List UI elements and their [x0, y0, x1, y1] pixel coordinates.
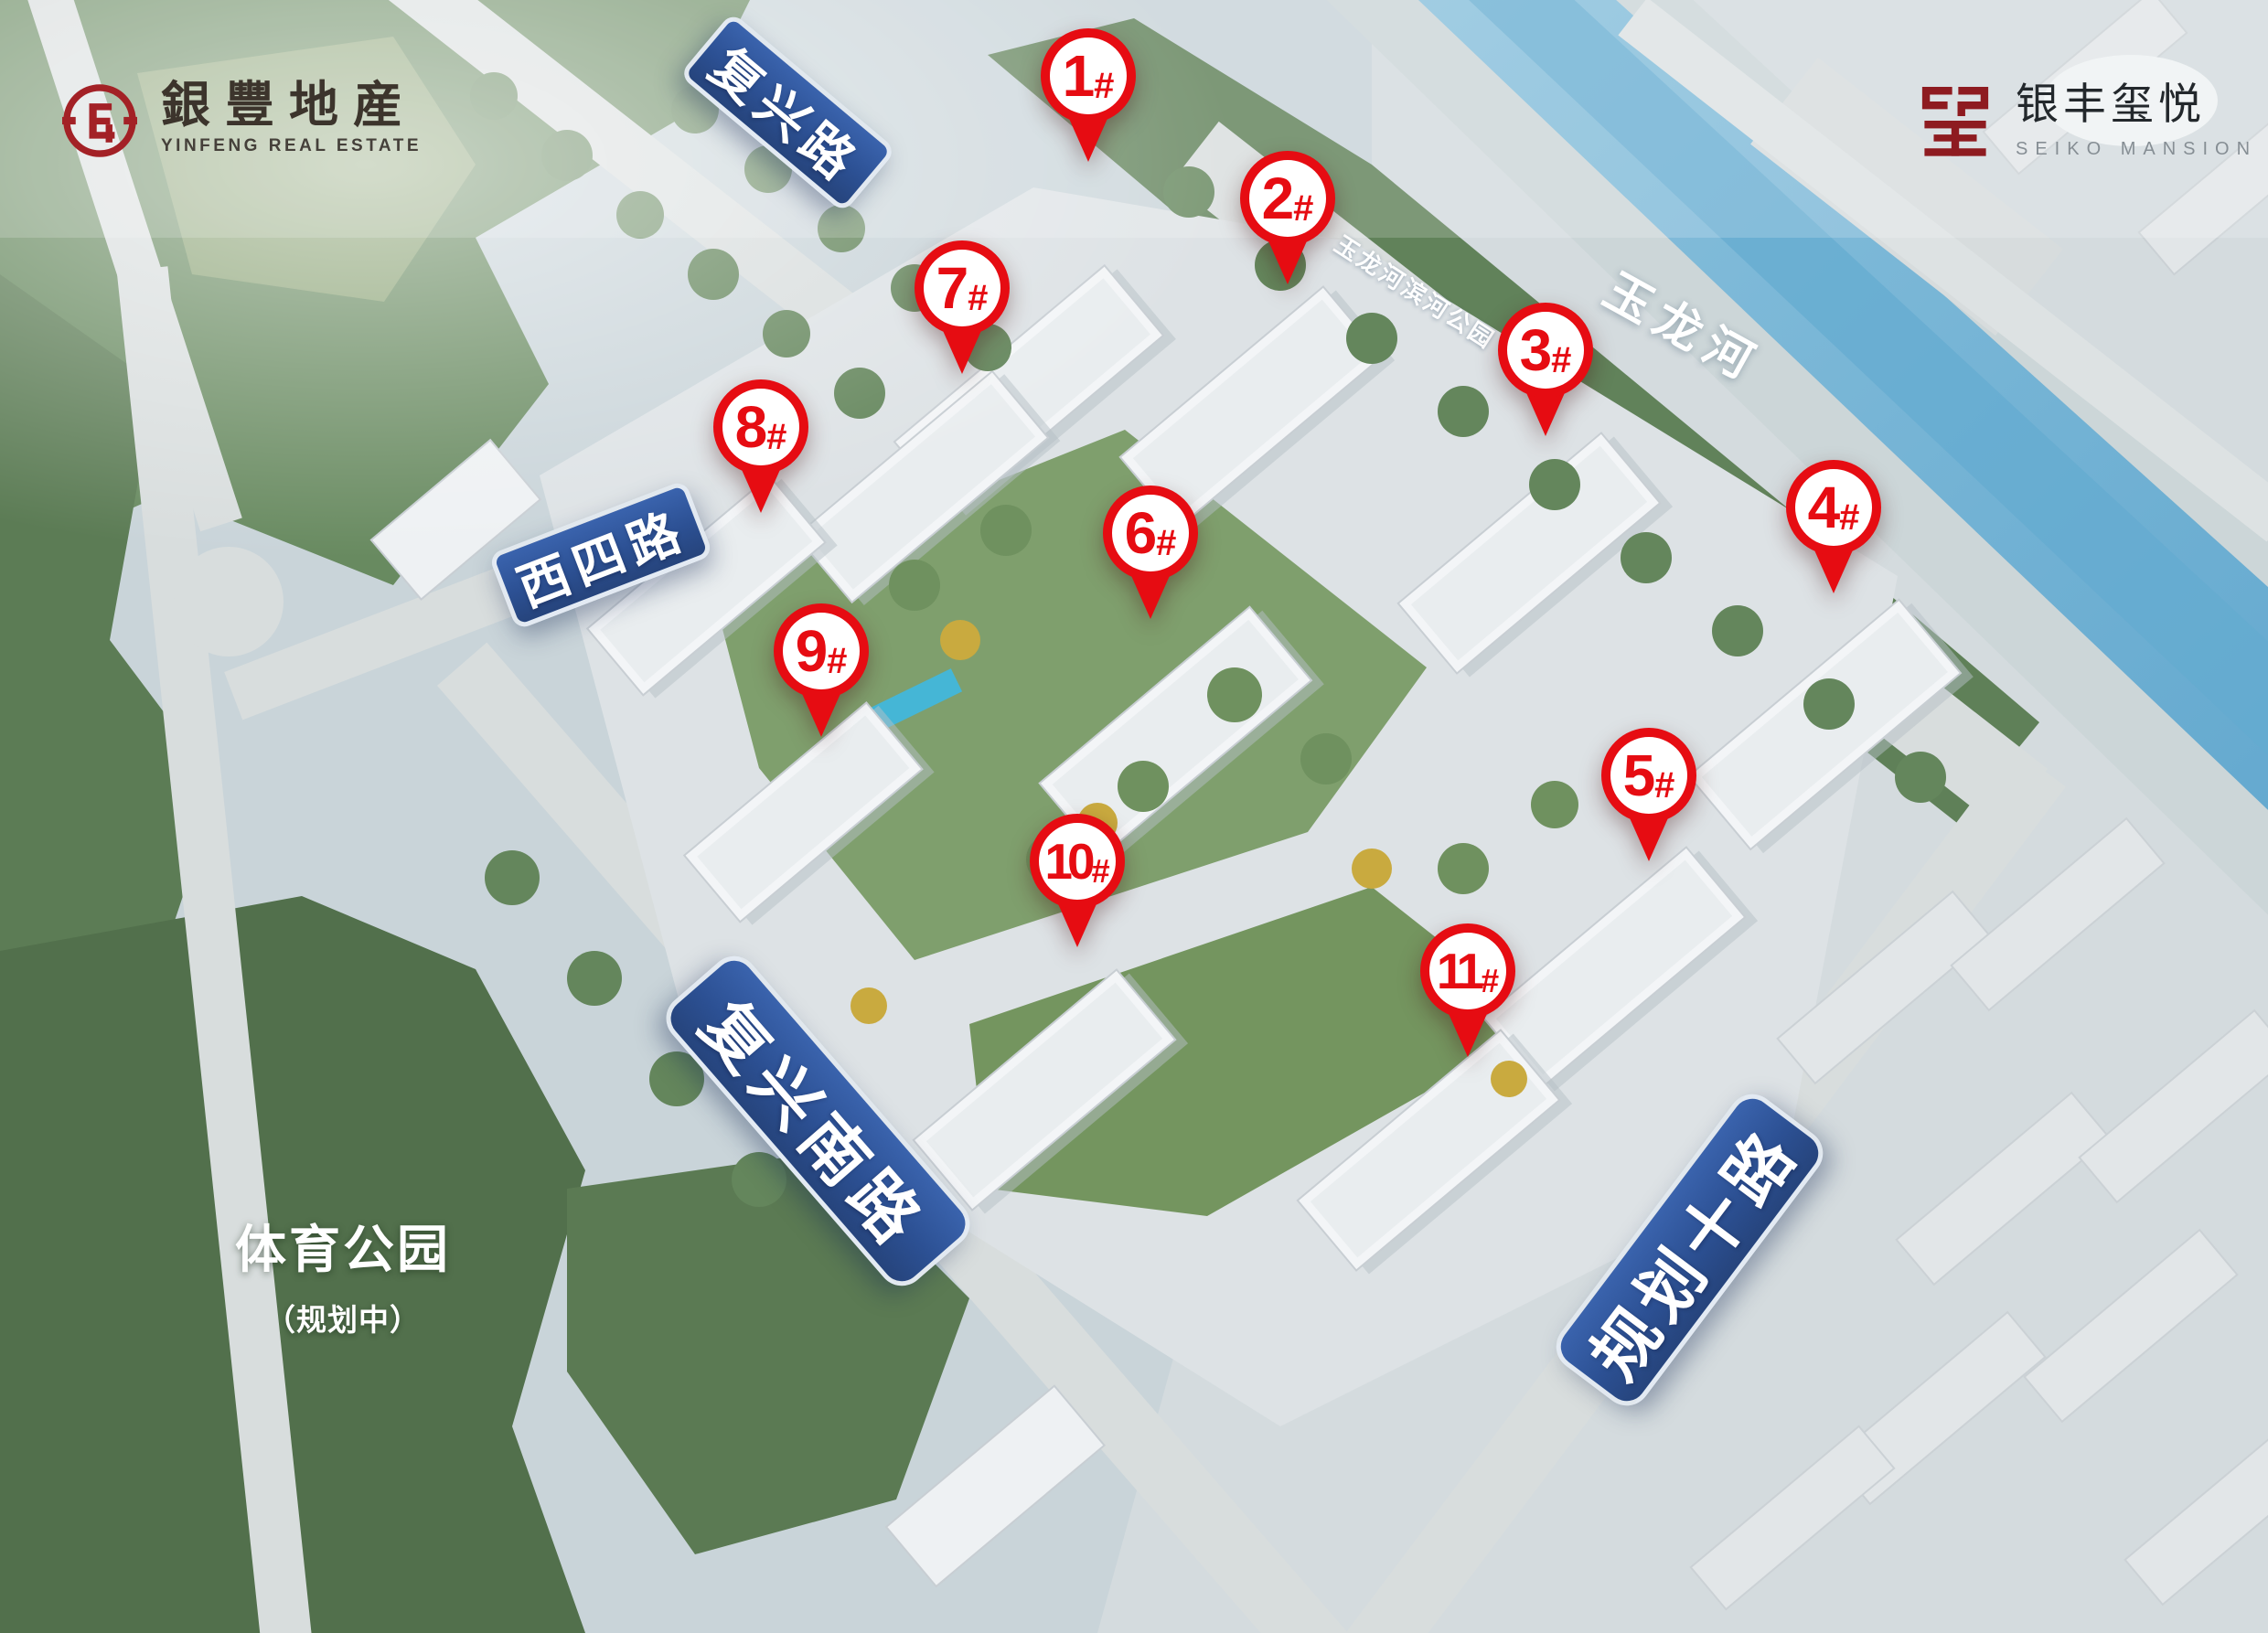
marker-number: 1 [1063, 47, 1093, 105]
marker-suffix: # [1839, 499, 1859, 536]
developer-name-en: YINFENG REAL ESTATE [161, 136, 422, 156]
yinfeng-seal-icon [62, 79, 137, 163]
aerial-masterplan: 銀豐地産 YINFENG REAL ESTATE 银丰玺悦 SEIKO MANS… [0, 0, 2268, 1633]
marker-suffix: # [1293, 190, 1313, 227]
marker-badge: 1 # [1041, 28, 1136, 123]
marker-suffix: # [1551, 342, 1571, 379]
marker-badge: 10 # [1030, 814, 1125, 909]
marker-badge: 9 # [774, 603, 869, 699]
marker-badge: 2 # [1240, 151, 1335, 246]
sports-park-title: 体育公园 [233, 1209, 453, 1283]
marker-number: 9 [796, 622, 826, 680]
marker-number: 5 [1623, 746, 1653, 805]
marker-suffix: # [1156, 525, 1176, 561]
sports-park-status: （规划中） [233, 1296, 453, 1339]
project-name-en: SEIKO MANSION [2016, 139, 2257, 160]
marker-number: 7 [936, 259, 967, 317]
seiko-mansion-logo-icon [1917, 82, 1994, 159]
marker-suffix: # [1092, 855, 1110, 888]
sports-park-label: 体育公园 （规划中） [233, 1209, 453, 1339]
marker-number: 3 [1520, 321, 1550, 379]
marker-suffix: # [968, 280, 988, 316]
marker-number: 6 [1125, 504, 1155, 562]
marker-suffix: # [1094, 68, 1114, 104]
marker-number: 4 [1808, 478, 1838, 537]
marker-suffix: # [766, 419, 786, 455]
marker-number: 2 [1262, 169, 1292, 228]
marker-number: 8 [735, 398, 765, 456]
developer-name-cn: 銀豐地産 [161, 79, 422, 131]
marker-number: 11 [1437, 946, 1479, 997]
site-render-background [0, 0, 2268, 1633]
marker-number: 10 [1044, 837, 1089, 887]
marker-suffix: # [1481, 965, 1499, 998]
marker-suffix: # [1654, 767, 1674, 804]
marker-suffix: # [827, 643, 847, 679]
marker-badge: 11 # [1420, 923, 1515, 1019]
marker-badge: 4 # [1786, 460, 1881, 555]
project-name-cn: 银丰玺悦 [2016, 82, 2257, 127]
developer-logo: 銀豐地産 YINFENG REAL ESTATE [62, 79, 422, 163]
marker-badge: 8 # [713, 379, 808, 475]
marker-badge: 6 # [1103, 486, 1198, 581]
project-logo: 银丰玺悦 SEIKO MANSION [1917, 82, 2257, 160]
marker-badge: 7 # [915, 240, 1010, 336]
marker-badge: 5 # [1601, 728, 1696, 823]
marker-badge: 3 # [1498, 303, 1593, 398]
